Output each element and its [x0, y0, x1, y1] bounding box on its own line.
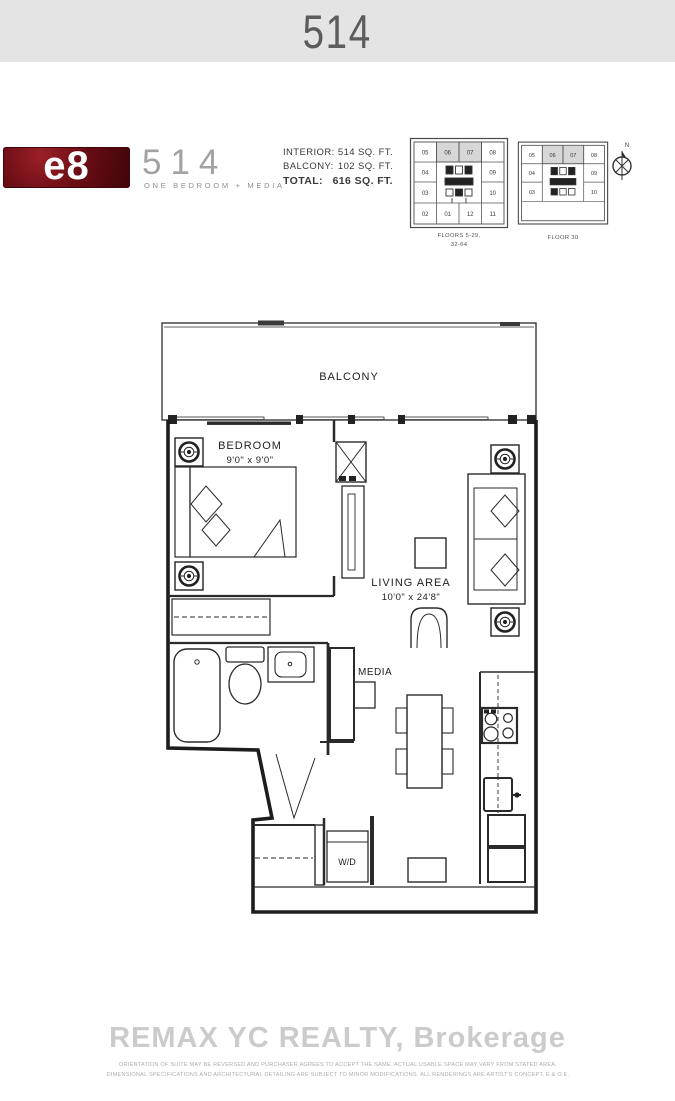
svg-text:06: 06 — [444, 151, 451, 157]
svg-text:01: 01 — [444, 212, 451, 218]
column-icon — [491, 445, 519, 473]
balcony-value: 102 SQ. FT. — [338, 161, 393, 172]
coffee-table — [415, 538, 446, 568]
bedroom-label: BEDROOM — [218, 440, 282, 452]
washer-dryer-label: W/D — [338, 857, 356, 867]
hall-closet — [342, 486, 364, 578]
shaft-x-box-icon — [336, 442, 366, 482]
entry-closet — [253, 825, 324, 885]
svg-text:06: 06 — [550, 153, 556, 159]
interior-area-row: INTERIOR: 514 SQ. FT. — [283, 147, 393, 158]
dining-table — [396, 695, 453, 788]
kitchen-sink — [484, 776, 521, 813]
keyplan-floors-5-64: 05 06 07 08 04 09 03 10 02 01 12 11 — [409, 137, 509, 230]
svg-text:03: 03 — [422, 191, 429, 197]
balcony-label: BALCONY: — [283, 161, 334, 172]
bathroom-door-swing — [276, 754, 315, 818]
e8-logo-text: e8 — [43, 146, 90, 186]
svg-text:05: 05 — [422, 151, 429, 157]
total-value: 616 SQ. FT. — [333, 175, 393, 187]
bedroom-dimensions: 9'0" x 9'0" — [226, 455, 273, 466]
svg-text:09: 09 — [591, 171, 597, 177]
media-label: MEDIA — [358, 667, 392, 678]
keyplan-floor-30: 05 06 07 08 04 09 03 10 — [517, 137, 609, 230]
svg-text:07: 07 — [570, 153, 576, 159]
toilet — [226, 647, 264, 704]
cooktop — [482, 708, 517, 743]
model-subtitle: ONE BEDROOM + MEDIA — [144, 181, 285, 190]
bed — [175, 467, 296, 557]
svg-text:02: 02 — [422, 212, 429, 218]
svg-text:N: N — [625, 143, 629, 149]
model-number: 514 — [142, 143, 227, 183]
svg-text:11: 11 — [490, 212, 497, 218]
north-compass-icon: N — [605, 137, 641, 185]
svg-text:08: 08 — [591, 153, 597, 159]
floorplan-drawing: BALCONY BEDROOM 9'0" x 9'0" — [158, 318, 540, 916]
living-area-dimensions: 10'0" x 24'8" — [382, 592, 441, 603]
brokerage-watermark: REMAX YC REALTY, Brokerage — [0, 1022, 675, 1055]
bench — [408, 858, 446, 882]
balcony-label: BALCONY — [319, 371, 379, 383]
column-icon — [175, 438, 203, 466]
fridge — [488, 815, 525, 882]
media-desk — [330, 648, 375, 740]
svg-text:09: 09 — [489, 171, 496, 177]
svg-text:12: 12 — [467, 212, 474, 218]
area-stats: INTERIOR: 514 SQ. FT. BALCONY: 102 SQ. F… — [283, 147, 393, 190]
balcony-area-row: BALCONY: 102 SQ. FT. — [283, 161, 393, 172]
interior-label: INTERIOR: — [283, 147, 335, 158]
sofa — [468, 474, 525, 604]
column-icon — [175, 562, 203, 590]
disclaimer-line-1: ORIENTATION OF SUITE MAY BE REVERSED AND… — [88, 1061, 588, 1071]
svg-text:07: 07 — [467, 151, 474, 157]
unit-number-title: 514 — [303, 4, 372, 59]
svg-text:10: 10 — [591, 190, 597, 196]
disclaimer: ORIENTATION OF SUITE MAY BE REVERSED AND… — [88, 1061, 588, 1080]
svg-text:04: 04 — [529, 171, 535, 177]
building-core — [445, 166, 473, 203]
building-core — [550, 167, 576, 195]
armchair — [411, 608, 447, 648]
keyplan-a-caption: FLOORS 5-29, 32-64 — [409, 232, 509, 250]
interior-value: 514 SQ. FT. — [338, 147, 393, 158]
svg-text:08: 08 — [489, 151, 496, 157]
total-area-row: TOTAL: 616 SQ. FT. — [283, 175, 393, 187]
keyplan-b-caption: FLOOR 30 — [517, 234, 609, 243]
bedroom-closet — [168, 596, 334, 635]
bathroom-sink — [268, 647, 314, 682]
total-label: TOTAL: — [283, 175, 323, 187]
page-header: 514 — [0, 0, 675, 62]
column-icon — [491, 608, 519, 636]
living-area-label: LIVING AREA — [371, 577, 450, 589]
disclaimer-line-2: DIMENSIONAL SPECIFICATIONS AND ARCHITECT… — [88, 1071, 588, 1081]
e8-brand-logo: e8 — [3, 147, 130, 188]
bathtub — [174, 649, 220, 742]
svg-text:05: 05 — [529, 153, 535, 159]
svg-text:10: 10 — [489, 191, 496, 197]
svg-text:03: 03 — [529, 190, 535, 196]
svg-text:04: 04 — [422, 171, 429, 177]
sliding-door-wall — [168, 415, 536, 425]
laundry-closet — [324, 816, 372, 885]
